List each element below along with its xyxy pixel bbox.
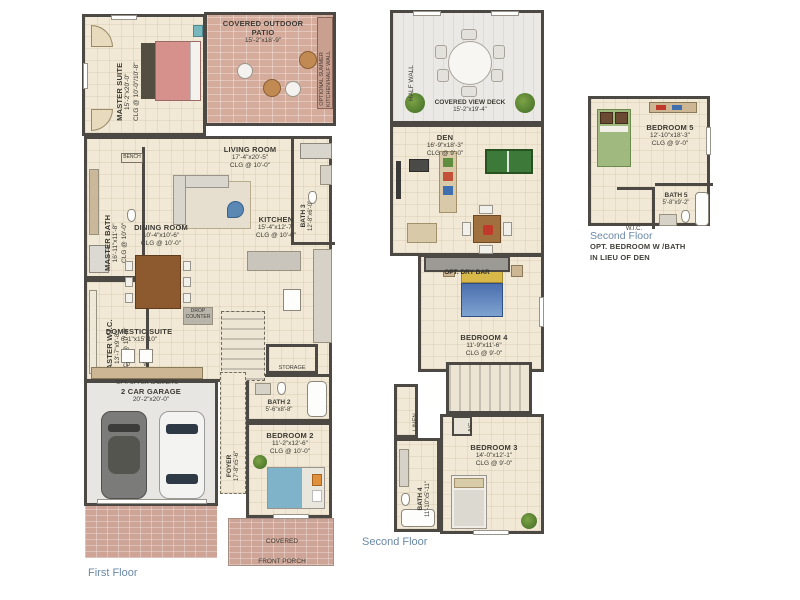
room-storage: STORAGE [266,344,318,374]
window [273,514,309,519]
dresser [649,102,697,113]
porch-label: COVERED FRONT PORCH [255,529,309,568]
chair [503,222,512,236]
bedroom3-label: BEDROOM 3 14'-0"x12'-1" CLG @ 9'-0" [451,443,537,468]
cushion [443,158,453,167]
wall-art [409,159,429,172]
second-floor-caption: Second Floor [362,536,427,548]
room-name: FOYER [226,451,234,481]
bath-vanity [89,169,99,235]
room-dims: 11'-10"x5'-11" [425,481,433,517]
kitchen-counter [313,249,332,343]
cushion [443,186,453,195]
room-dims: 15'-2"x19'-4" [420,107,520,114]
deck-chair [437,69,449,82]
bed-blanket [454,490,484,526]
label-line: KITCHEN/HALF WALL [326,51,333,107]
room-name: DINING ROOM [115,223,207,232]
dining-chair [125,293,133,303]
chair [479,205,493,214]
room-dims: 15'-4"x12'-7" [233,224,319,232]
closet-door-swing [91,109,113,131]
room-dims: 12'-10"x18'-3" [631,132,709,140]
wicker-chair [299,51,317,69]
first-floor-plan: MASTER SUITE 15'-2"x20'-0" CLG @ 10'-0"/… [78,10,342,566]
drop-counter-label: DROP COUNTER [182,309,214,321]
room-covered-view-deck: HALF WALL COVERED VIEW DECK 15'-2"x19'-4… [390,10,544,124]
bath4-label: BATH 4 11'-10"x5'-11" [417,481,433,517]
room-ceiling: CLG @ 10'-0" [253,448,327,456]
domestic-suite-label: DOMESTIC SUITE 6'-1"x15'-10" [93,327,185,344]
car-white [159,411,205,499]
label-text: W [143,362,148,368]
bathtub [307,381,327,417]
second-floor-plan: HALF WALL COVERED VIEW DECK 15'-2"x19'-4… [390,10,546,534]
closet-door-swing [91,25,113,47]
sofa-chaise [173,175,186,225]
window [473,530,509,535]
chair [462,222,471,236]
room-dims: 5'-8"x9'-2" [655,200,697,207]
bed-pillow [312,474,322,486]
room-ceiling: CLG @ 10'-0" [192,162,308,170]
master-bed [155,41,201,101]
room-dims: 10'-4"x10'-6" [115,232,207,240]
patio-label: COVERED OUTDOOR PATIO 15'-2"x18'-9" [219,19,307,45]
den-label: DEN 16'-9"x18'-3" CLG @ 9'-0" [407,133,483,158]
summer-kitchen-label: OPTIONAL SUMMER KITCHEN/HALF WALL [319,51,333,107]
room-name: BATH 5 [655,192,697,200]
game-box [483,225,493,235]
room-bath4: BATH 4 11'-10"x5'-11" [394,438,440,532]
deck-opening [413,11,441,16]
room-dims: 15'-2"x20'-0" [124,63,132,122]
bed5 [597,109,631,167]
deck-chair [461,86,477,97]
chair [479,245,493,254]
bath-vanity [399,449,409,487]
half-wall-label: HALF WALL [399,65,419,101]
room-dims: 20'-2"x20'-0" [97,396,205,404]
deck-chair [435,45,447,59]
room-covered-outdoor-patio: COVERED OUTDOOR PATIO 15'-2"x18'-9" OPTI… [204,12,336,126]
dryer-label: W [139,352,153,372]
linen-label: LINEN [403,413,423,431]
garage-door [97,499,207,504]
bathtub [695,192,709,226]
deck-chair [461,29,477,40]
stairs [221,311,265,381]
label-text: LINEN [413,413,419,431]
card-table [473,215,501,243]
nightstand [511,265,523,277]
foosball-table [485,149,533,174]
label-text: D [126,362,130,368]
toilet [277,382,286,395]
window [539,297,544,327]
room-ceiling: CLG @ 10'-0" [115,240,207,248]
room-wic5: W.I.C. [617,187,655,229]
room-foyer: FOYER 17'-8"x5'-6" [220,372,246,494]
label-text: OPT. DRY BAR [444,269,490,276]
first-floor-caption: First Floor [88,567,138,579]
room-name: DOMESTIC SUITE [93,327,185,336]
room-master-suite: MASTER SUITE 15'-2"x20'-0" CLG @ 10'-0"/… [82,14,206,136]
stairs [446,362,532,414]
garage-label: 2 CAR GARAGE 20'-2"x20'-0" [97,387,205,404]
plant [521,513,537,529]
car-roof [108,436,140,474]
bed-pillow [615,112,628,124]
label-text: STORAGE [279,365,306,371]
car-dark [101,411,147,499]
bath-vanity [255,383,271,395]
optional-floor-title: Second Floor [590,230,750,242]
car-windshield [166,424,198,434]
room-ceiling: CLG @ 9'-0" [631,140,709,148]
room-name: 2 CAR GARAGE [97,387,205,396]
dining-chair [183,293,191,303]
room-dims: 14'-0"x12'-1" [451,452,537,460]
kitchen-label: KITCHEN 15'-4"x12'-7" CLG @ 10'-0" [233,215,319,240]
floorplan-canvas: MASTER SUITE 15'-2"x20'-0" CLG @ 10'-0"/… [0,0,800,600]
dining-chair [183,261,191,271]
room-dims: 17'-8"x5'-6" [234,451,242,481]
bed-blanket [268,468,302,508]
optional-floor-note-line2: IN LIEU OF DEN [590,253,750,264]
room-name: COVERED OUTDOOR PATIO [219,19,307,37]
bath2-label: BATH 2 5'-6"x8'-8" [253,399,305,414]
tv [396,161,401,199]
room-name: MASTER BATH [103,215,112,271]
deck-opening [491,11,519,16]
room-bedroom5: BEDROOM 5 12'-10"x18'-3" CLG @ 9'-0" W.I… [588,96,710,226]
room-dims: 6'-1"x15'-10" [93,336,185,344]
bed-blanket [461,283,503,317]
deck-table [448,41,492,85]
room-ceiling: CLG @ 9'-0" [451,460,537,468]
window [111,15,137,20]
storage-label: STORAGE [271,355,313,375]
room-dims: 16'-9"x18'-3" [407,142,483,150]
room-ceiling: CLG @ 10'-0"/10'-8" [133,63,141,122]
table-line [507,151,509,172]
cushion [443,172,453,181]
room-name: BATH 2 [253,399,305,407]
room-name: LIVING ROOM [192,145,308,154]
bath5-label: BATH 5 5'-8"x9'-2" [655,192,697,207]
room-bedroom2: BEDROOM 2 11'-2"x12'-6" CLG @ 10'-0" [246,422,332,518]
dresser-item [672,105,682,110]
refrigerator [283,289,301,311]
desk [407,223,437,243]
driveway [85,506,217,558]
room-bath2: BATH 2 5'-6"x8'-8" [246,374,332,422]
room-name: BEDROOM 4 [437,333,531,342]
dining-room-label: DINING ROOM 10'-4"x10'-6" CLG @ 10'-0" [115,223,207,248]
label-text: BENCH [123,154,141,160]
dining-chair [125,261,133,271]
bed-pillow [312,490,322,502]
room-dims: 11'-2"x12'-6" [253,440,327,448]
patio-table [285,81,301,97]
dining-table [135,255,181,309]
dresser-item [656,105,666,110]
wicker-chair [263,79,281,97]
label-line: OPTIONAL SUMMER [319,51,326,107]
plant [253,455,267,469]
room-bath5: BATH 5 5'-8"x9'-2" [655,183,713,229]
room-den: DEN 16'-9"x18'-3" CLG @ 9'-0" [390,124,544,256]
nightstand [193,25,203,37]
washer-label: D [121,352,135,372]
ac-label: A/C [458,423,478,432]
car-rear-window [166,474,198,484]
room-linen: LINEN [394,384,418,438]
car-windshield [108,424,140,432]
bed-sheet [600,126,628,132]
view-deck-label: COVERED VIEW DECK 15'-2"x19'-4" [420,99,520,114]
deck-chair [493,45,505,59]
bedroom4-label: BEDROOM 4 11'-9"x11'-6" CLG @ 9'-0" [437,333,531,358]
room-ceiling: CLG @ 9'-0" [437,350,531,358]
room-name: COVERED VIEW DECK [420,99,520,107]
patio-table [237,63,253,79]
bed-pillows [190,42,200,100]
bedroom2-label: BEDROOM 2 11'-2"x12'-6" CLG @ 10'-0" [253,431,327,456]
toilet [681,210,690,223]
label-text: DROP COUNTER [186,308,211,320]
room-name: COVERED FRONT PORCH [258,538,306,565]
living-room-label: LIVING ROOM 17'-4"x20'-5" CLG @ 10'-0" [192,145,308,170]
optional-floor-caption: Second Floor OPT. BEDROOM W /BATH IN LIE… [590,230,750,263]
bed2 [267,467,325,509]
window [83,63,88,89]
master-suite-label: MASTER SUITE 15'-2"x20'-0" CLG @ 10'-0"/… [115,63,141,122]
deck-chair [491,69,503,82]
bath-vanity [320,165,332,185]
sofa [439,151,457,213]
room-name: BEDROOM 2 [253,431,327,440]
room-dims: 15'-2"x18'-9" [219,37,307,45]
room-dims: 5'-6"x8'-8" [253,407,305,414]
label-text: A/C [468,423,474,432]
foyer-label: FOYER 17'-8"x5'-6" [226,451,242,481]
room-covered-front-porch: COVERED FRONT PORCH [228,518,334,566]
bed3 [451,475,487,529]
kitchen-island [247,251,301,271]
toilet [401,493,410,506]
opt-dry-bar-label: OPT. DRY BAR [424,260,510,280]
room-ceiling: CLG @ 10'-0" [233,232,319,240]
label-text: HALF WALL [408,65,415,101]
room-name: BEDROOM 5 [631,123,709,132]
optional-floor-note-line1: OPT. BEDROOM W /BATH [590,242,750,253]
dining-chair [183,277,191,287]
room-dims: 11'-9"x11'-6" [437,342,531,350]
room-name: MASTER SUITE [115,63,124,122]
ac-closet: A/C [452,416,472,436]
bed-pillows [454,478,484,488]
label-text: OPT. UPPER CABINETS [116,380,178,386]
room-name: BEDROOM 3 [451,443,537,452]
room-dims: 17'-4"x20'-5" [192,154,308,162]
bed-pillow [600,112,613,124]
room-name: KITCHEN [233,215,319,224]
room-garage: 2 CAR GARAGE 20'-2"x20'-0" [84,380,218,506]
room-ceiling: CLG @ 9'-0" [407,150,483,158]
room-name: DEN [407,133,483,142]
bench-label: BENCH [120,154,144,160]
bedroom5-label: BEDROOM 5 12'-10"x18'-3" CLG @ 9'-0" [631,123,709,148]
bath-vanity [659,214,677,226]
dining-chair [125,277,133,287]
room-name: BATH 4 [417,481,425,517]
optional-second-floor-plan: BEDROOM 5 12'-10"x18'-3" CLG @ 9'-0" W.I… [588,96,710,226]
